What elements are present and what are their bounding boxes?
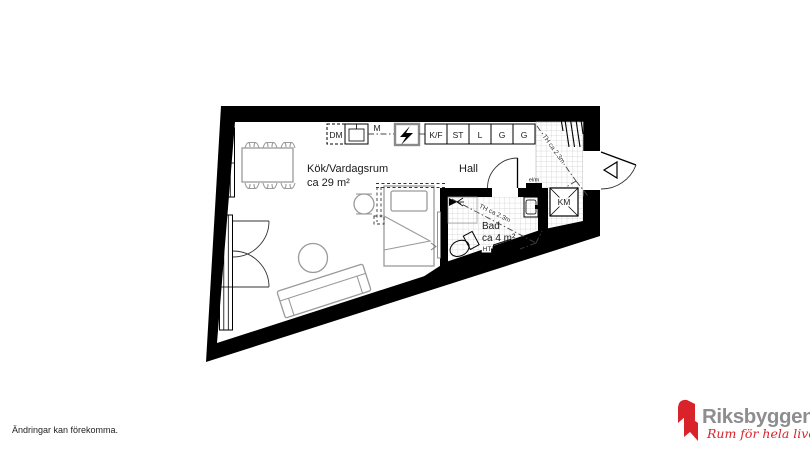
entry-door — [583, 151, 636, 190]
towel-dryer-label: HT — [483, 246, 492, 253]
washing-machine: KM — [550, 188, 578, 216]
disclaimer-text: Ändringar kan förekomma. — [12, 425, 118, 435]
electrical-cabinet-label: el/m — [529, 178, 540, 184]
wardrobe2-label: G — [521, 130, 528, 140]
riksbyggen-logo-icon — [678, 400, 698, 441]
armchair — [354, 194, 374, 214]
linen-label: L — [478, 130, 483, 140]
wardrobe1-label: G — [499, 130, 506, 140]
bed — [384, 186, 434, 266]
floor-plan: DM M K/F ST L G G TH ca 2.3m TH ca 2.3m — [0, 0, 810, 455]
brand-name: Riksbyggen — [702, 405, 810, 428]
hall-label: Hall — [459, 163, 478, 175]
brand-tagline: Rum för hela livet — [706, 426, 810, 441]
fridge-label: K/F — [429, 130, 442, 140]
microwave-label: M — [373, 123, 380, 133]
electrical-cabinet — [526, 183, 542, 193]
floorplan-page: DM M K/F ST L G G TH ca 2.3m TH ca 2.3m — [0, 0, 810, 455]
dining-set — [242, 143, 295, 189]
bath-label: Bad — [482, 221, 500, 232]
coffee-table — [299, 244, 328, 273]
washing-machine-label: KM — [558, 197, 571, 207]
dishwasher-label: DM — [329, 130, 342, 140]
livingroom-area-label: ca 29 m² — [307, 177, 350, 189]
cleaning-label: ST — [453, 130, 464, 140]
livingroom-label: Kök/Vardagsrum — [307, 163, 388, 175]
riksbyggen-logo: Riksbyggen Rum för hela livet — [678, 400, 810, 441]
dining-table — [242, 148, 293, 182]
bath-area-label: ca 4 m² — [482, 233, 516, 244]
entrance-arrow-icon — [604, 162, 617, 178]
